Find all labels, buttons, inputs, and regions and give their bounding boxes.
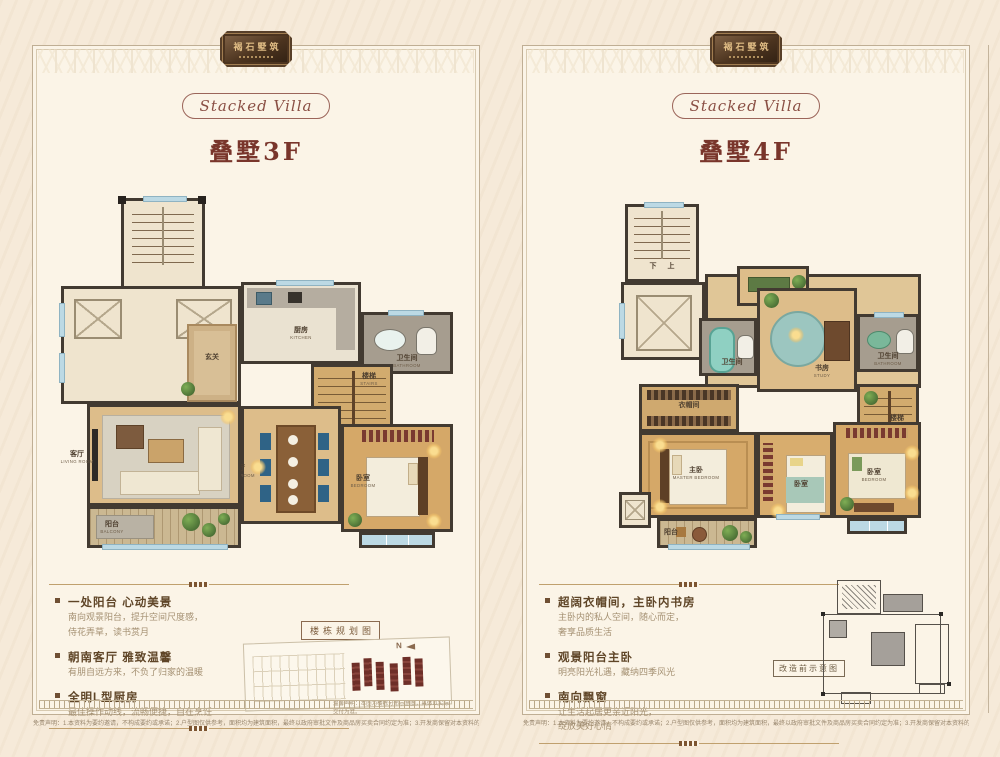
elevator-shaft [636,295,692,351]
kitchen-room: 厨房 KITCHEN [241,282,361,364]
lamp-glow [904,445,920,461]
bottom-ornament-strip [39,700,473,709]
bedroom-room: 卧室 BEDROOM [341,424,453,532]
plant [764,293,779,308]
room-label-balcony: 阳台 BALCONY [0,521,238,535]
stacked-villa-badge: Stacked Villa [672,93,821,119]
schematic-gray-block [883,594,923,612]
room-label-bathroom: 卫生间 [710,359,754,367]
north-arrow: N [396,641,402,650]
window [619,303,625,339]
feature-item: 超阔衣帽间，主卧内书房 主卧内的私人空间，随心而定， 奢享品质生活 [545,594,839,640]
room-label-kitchen: 厨房 KITCHEN [244,327,358,341]
window-mullion [386,535,387,545]
room-label-master: 主卧 MASTER BEDROOM [638,467,754,481]
toilet [416,327,437,355]
room-label-foyer: 玄关 [187,354,237,362]
siteplan-label: 楼栋规划图 [301,621,380,640]
window [776,514,820,520]
schematic-corner [821,612,825,616]
page-title-3f: 叠墅3F [33,132,479,167]
balcony-room: 阳台 BALCONY [87,506,241,548]
bed-pillow [790,458,803,466]
floorplan-3f: 玄关 厨房 KITCHEN 卫生间 BATHROOM [59,196,459,548]
master-bedroom-room: 主卧 MASTER BEDROOM [639,432,757,518]
room-label-living: 客厅 LIVING ROOM [42,451,112,465]
closet-shelf [647,390,731,400]
stair-rail [661,211,663,259]
schematic-gray-block [871,632,905,666]
wardrobe [763,443,773,501]
schematic-right-wing [915,624,949,684]
brand-logo-text: 褐石墅筑 [720,40,771,53]
stacked-villa-badge: Stacked Villa [182,93,331,119]
bay-window [847,518,907,534]
coffee-table [148,439,184,463]
window-mullion [869,521,870,531]
schematic-gray-block [829,620,847,638]
highlighted-building [415,658,424,686]
desk [824,321,850,361]
lamp-glow [904,485,920,501]
plant [864,391,878,405]
room-label-cloakroom: 衣帽间 [642,402,736,410]
highlighted-building [352,663,361,691]
schematic-tower [837,580,881,614]
plant [181,382,195,396]
lamp-glow [426,443,442,459]
wall-post [118,196,126,204]
panel-3f: 褐石墅筑 Stacked Villa 叠墅3F 玄关 [32,45,480,715]
bottom-ornament-strip [529,700,963,709]
shaft-x [625,500,645,520]
bed-headboard [418,457,428,515]
next-page-edge [988,45,989,713]
brand-logo-text: 褐石墅筑 [230,40,281,53]
panel-4f: 褐石墅筑 Stacked Villa 叠墅4F 下 上 [522,45,970,715]
window [102,544,228,550]
dining-chair [318,433,329,450]
foyer-rug: 玄关 [187,324,237,402]
lamp-glow [652,437,668,453]
plant [348,513,362,527]
toilet [896,329,914,354]
armchair [116,425,144,449]
schematic-corner [821,692,825,696]
balcony-room: 阳台 [657,518,757,548]
window [668,544,750,550]
ornament-divider [49,584,349,585]
brand-plaque: 褐石墅筑 [710,31,782,67]
lamp-glow [652,499,668,515]
schematic-corner [947,682,951,686]
highlighted-building [376,662,385,690]
stair-rail [162,207,164,265]
schematic-corner [939,612,943,616]
lamp-glow [220,409,236,425]
page-title-4f: 叠墅4F [523,132,969,167]
window [388,310,424,316]
ornament-divider [539,584,839,585]
window [276,280,334,286]
window [644,202,684,208]
siteplan-buildings-outline [252,653,346,702]
bedroom2-room: 卧室 [757,432,833,518]
plant [840,497,854,511]
plant [792,275,806,289]
bathroom-sink [374,329,406,351]
brand-plaque: 褐石墅筑 [220,31,292,67]
bathroom2-room: 卫生间 BATHROOM [857,314,919,372]
dresser [854,503,894,512]
window [59,303,65,337]
dining-room: 餐厅 DINING ROOM [241,406,341,524]
sofa [120,471,200,495]
lamp-glow [788,327,804,343]
bathroom-tub-room: 卫生间 [699,318,757,376]
cloakroom-room: 衣帽间 [639,384,739,432]
study-room: 书房 STUDY [757,288,857,392]
window [874,312,904,318]
elevator-shaft [74,299,122,339]
highlighted-building [390,663,399,691]
schematic-stairs [842,585,876,609]
closet-shelf [647,416,731,426]
room-label-bedroom2: 卧室 [772,481,830,489]
room-label-study: 书房 STUDY [790,365,854,379]
disclaimer-text: 免责声明：1.本资料为要约邀请，不构成要约或承诺；2.户型图仅供参考，面积均为建… [523,718,969,727]
kitchen-stove [288,292,302,303]
room-label-bedroom3: 卧室 BEDROOM [830,469,918,483]
window [143,196,187,202]
dining-chair [260,433,271,450]
lamp-glow [426,513,442,529]
brand-logo-subline [729,56,763,58]
kitchen-sink [256,292,272,305]
room-label-balcony: 阳台 [588,529,754,537]
ornament-divider [49,728,349,729]
stairwell-room [121,198,205,294]
room-label-bedroom: 卧室 BEDROOM [328,475,398,489]
feature-item: 南向飘窗 让生活起居更亲近阳光， 绽放美好心情 [545,689,839,735]
window [59,353,65,383]
elevator-lobby-room [621,282,705,360]
bathroom-sink [867,331,891,349]
bed-pillow [408,463,418,485]
stair-up-label: 上 [646,263,696,271]
stairwell-room: 下 上 [625,204,699,282]
wardrobe [362,430,434,442]
bay-window [359,532,435,548]
room-label-bathroom2: 卫生间 BATHROOM [860,353,916,367]
toilet [737,335,754,359]
highlighted-building [402,657,411,685]
bedroom3-room: 卧室 BEDROOM [833,422,921,518]
small-shaft [619,492,651,528]
living-room: 客厅 LIVING ROOM [87,404,241,506]
ornament-divider [539,743,839,744]
wall-post [198,196,206,204]
highlighted-building [363,658,372,686]
schematic-floorplan [819,580,961,706]
sofa [198,427,222,491]
brand-logo-subline [239,56,273,58]
floorplan-4f: 下 上 卫生间 书房 [619,196,923,548]
wardrobe [846,428,908,438]
disclaimer-text: 免责声明：1.本资料为要约邀请，不构成要约或承诺；2.户型图仅供参考，面积均为建… [33,718,479,727]
room-label-stairs: 楼梯 STAIRS [350,373,388,387]
schematic-bay [919,684,945,694]
plates [288,435,298,445]
